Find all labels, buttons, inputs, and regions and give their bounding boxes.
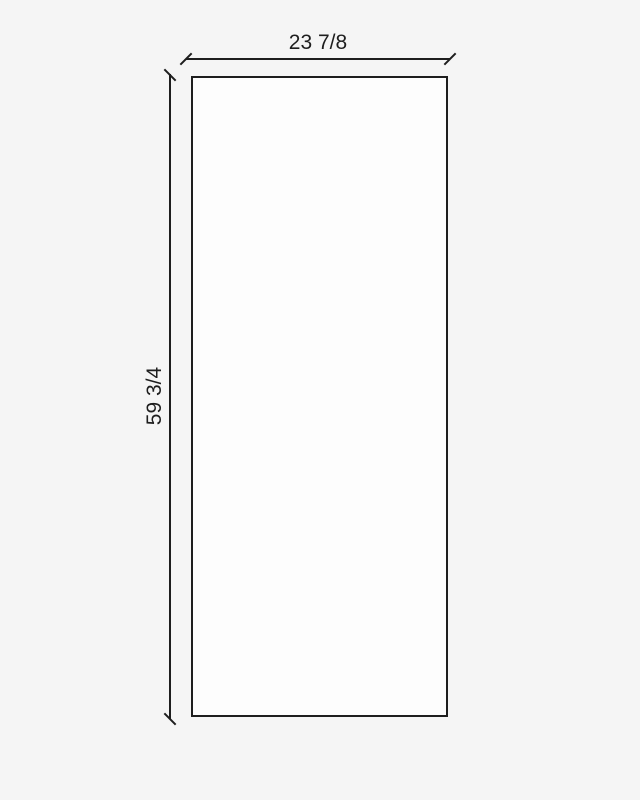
- panel-rectangle: [191, 76, 448, 717]
- drawing-canvas: 23 7/8 59 3/4: [0, 0, 640, 800]
- height-dimension-line: [169, 74, 171, 719]
- height-dimension-label: 59 3/4: [143, 367, 167, 425]
- width-dimension-label: 23 7/8: [186, 31, 450, 55]
- width-dimension-line: [186, 58, 450, 60]
